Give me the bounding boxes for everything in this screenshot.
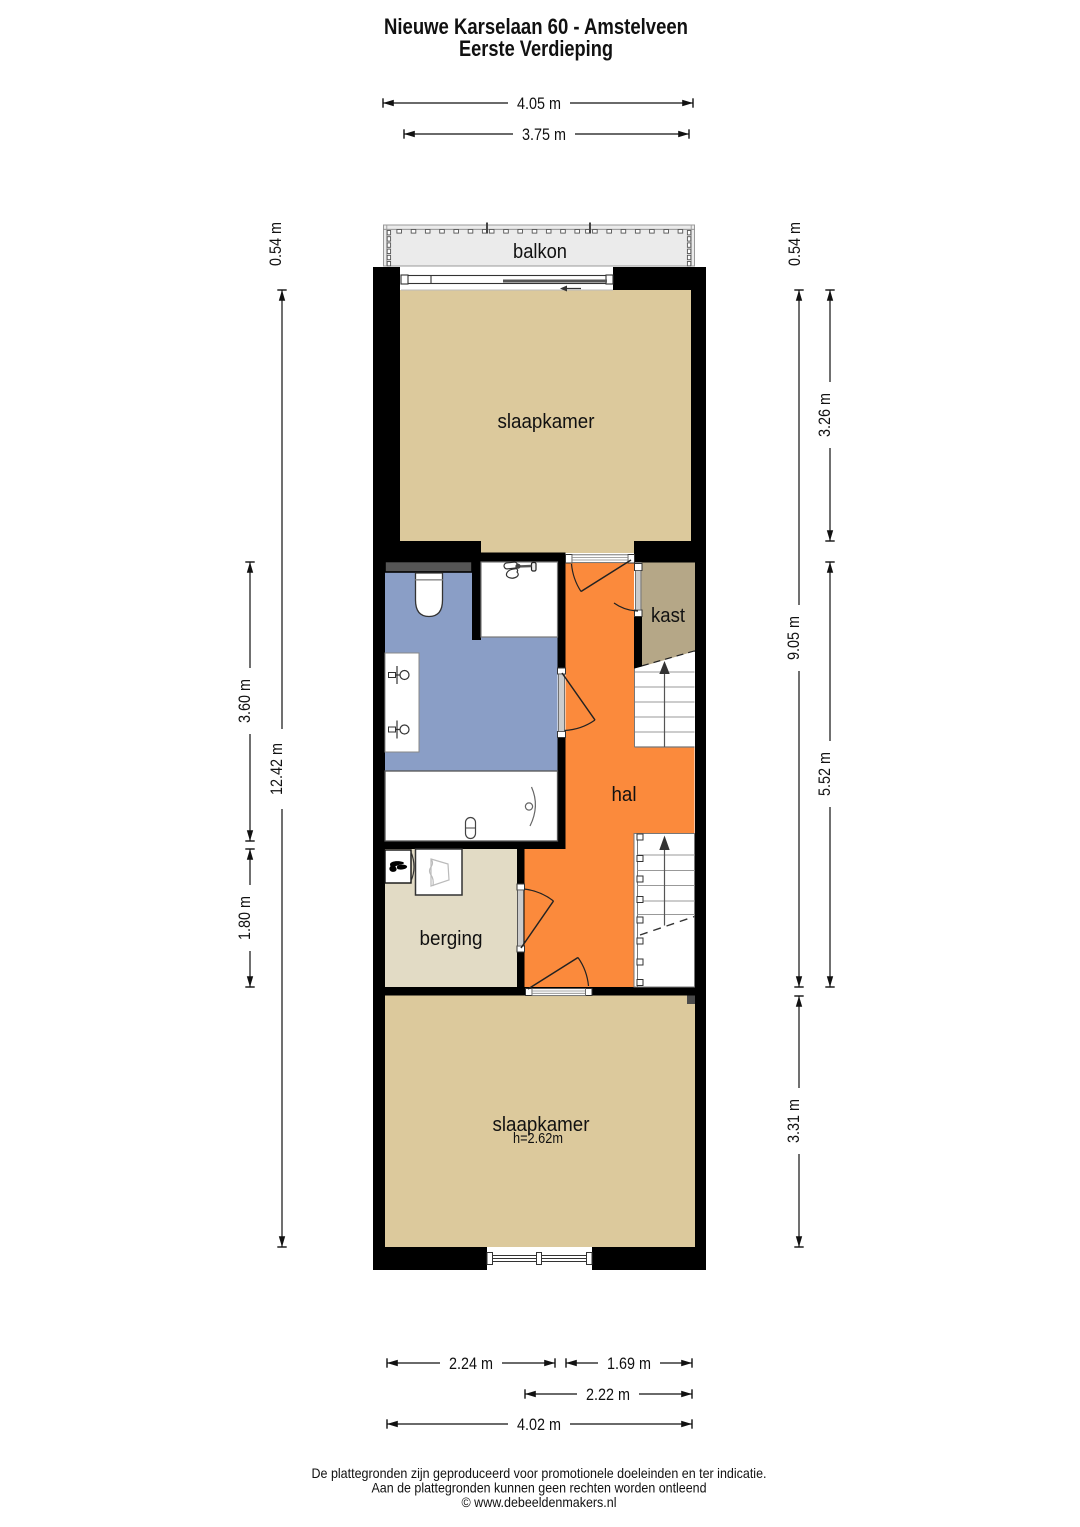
svg-text:3.31 m: 3.31 m (784, 1099, 803, 1143)
svg-text:© www.debeeldenmakers.nl: © www.debeeldenmakers.nl (462, 1495, 617, 1510)
svg-text:0.54 m: 0.54 m (785, 222, 804, 266)
svg-text:4.02 m: 4.02 m (517, 1415, 561, 1434)
svg-text:3.26 m: 3.26 m (815, 393, 834, 437)
svg-text:3.60 m: 3.60 m (235, 679, 254, 723)
svg-text:h=2.62m: h=2.62m (513, 1130, 563, 1147)
svg-text:0.54 m: 0.54 m (266, 222, 285, 266)
svg-text:12.42 m: 12.42 m (267, 743, 286, 795)
svg-text:hal: hal (612, 784, 637, 806)
svg-text:5.52 m: 5.52 m (815, 752, 834, 796)
svg-text:berging: berging (420, 928, 483, 950)
svg-text:2.22 m: 2.22 m (586, 1385, 630, 1404)
svg-text:2.24 m: 2.24 m (449, 1354, 493, 1373)
svg-text:9.05 m: 9.05 m (784, 616, 803, 660)
svg-text:De plattegronden zijn geproduc: De plattegronden zijn geproduceerd voor … (312, 1466, 767, 1481)
svg-text:4.05 m: 4.05 m (517, 94, 561, 113)
svg-text:1.80 m: 1.80 m (235, 896, 254, 940)
svg-text:Eerste Verdieping: Eerste Verdieping (459, 36, 613, 61)
svg-text:kast: kast (651, 605, 685, 627)
svg-text:1.69 m: 1.69 m (607, 1354, 651, 1373)
svg-text:balkon: balkon (513, 241, 567, 263)
svg-text:slaapkamer: slaapkamer (498, 411, 595, 433)
svg-text:3.75 m: 3.75 m (522, 125, 566, 144)
svg-text:Aan de plattegronden kunnen ge: Aan de plattegronden kunnen geen rechten… (372, 1481, 707, 1496)
